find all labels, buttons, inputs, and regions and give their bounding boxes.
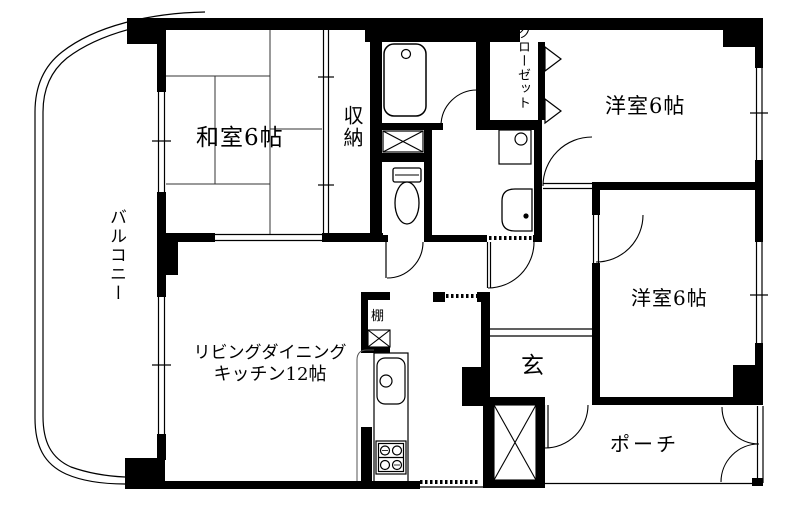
room-label-shelf: 棚: [371, 305, 384, 324]
walls: [125, 18, 763, 489]
ldk-label-line1: リビングダイニング: [180, 343, 360, 364]
porch-gate-arc-top: [722, 407, 759, 444]
duct-shaft-icon: [494, 405, 536, 480]
closet-bifold-doors-icon: [545, 47, 561, 123]
bathtub-icon: [384, 44, 426, 116]
room-label-porch: ポーチ: [610, 428, 679, 457]
room-label-shunou: 収納: [338, 105, 367, 161]
pipe-space-icon: [383, 131, 423, 152]
toilet-door-arc: [387, 242, 423, 278]
toilet-icon: [393, 168, 421, 224]
washroom-door-arc: [488, 242, 534, 288]
bath-door-arc: [441, 90, 477, 126]
gas-stove-icon: [376, 441, 406, 474]
room-label-ldk: リビングダイニング キッチン12帖: [180, 343, 360, 385]
ldk-label-line2: キッチン12帖: [180, 364, 360, 385]
entrance-door-arc: [545, 405, 588, 448]
washing-machine-pan-icon: [499, 130, 531, 164]
porch-gate-arc-bottom: [721, 444, 759, 482]
room-label-genkan: 玄: [521, 346, 544, 380]
shelf-box-icon: [368, 330, 390, 347]
room-label-closet: クローゼット: [513, 26, 532, 124]
bedroom2-door-arc: [596, 215, 643, 262]
room-label-balcony: バルコニー: [104, 208, 129, 296]
washbasin-icon: [502, 189, 532, 231]
kitchen-counter: [374, 353, 408, 482]
floor-plan: 和室6帖 収納 クローゼット 洋室6帖 洋室6帖 リビングダイニング キッチン1…: [0, 0, 800, 511]
room-label-bedroom-right: 洋室6帖: [631, 282, 708, 311]
room-label-bedroom-top: 洋室6帖: [605, 90, 685, 120]
kitchen-sink-icon: [377, 358, 405, 404]
room-label-washitsu: 和室6帖: [196, 118, 284, 152]
threshold-dashes: [420, 238, 532, 482]
bedroom1-door-arc: [543, 137, 592, 186]
